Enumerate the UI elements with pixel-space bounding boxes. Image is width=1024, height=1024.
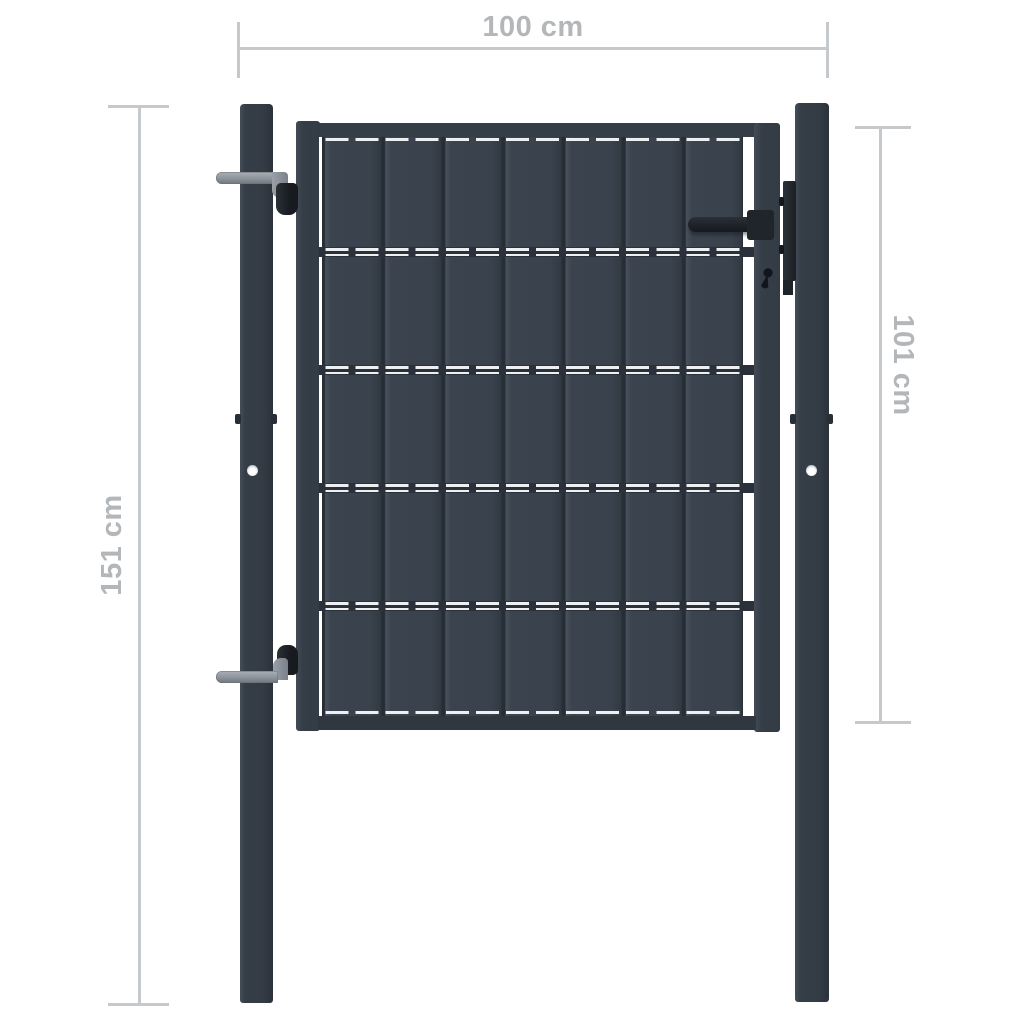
slats-pattern (322, 137, 743, 717)
left-post-hole (247, 465, 258, 476)
dimension-left-line (138, 106, 141, 1005)
upper-hinge-sleeve (276, 183, 298, 215)
dimension-left-tick-top (108, 105, 169, 108)
wire (322, 248, 743, 251)
lower-hinge-bolt (216, 671, 278, 683)
latch-plate (783, 181, 796, 281)
fence-gate-diagram: 100 cm 151 cm 101 cm (0, 0, 1024, 1024)
wire-row-divider-4 (319, 601, 754, 611)
dimension-right-tick-top (855, 126, 911, 129)
wire (322, 602, 743, 605)
left-post (240, 104, 273, 1003)
right-post-screw-right (827, 414, 833, 424)
left-post-screw-right (271, 414, 277, 424)
lock-body (747, 210, 774, 240)
wire (322, 372, 743, 375)
upper-hinge-bolt (216, 172, 278, 184)
wire-row-divider-3 (319, 483, 754, 493)
gate-left-stile (296, 121, 320, 731)
dimension-top-tick-left (237, 22, 240, 78)
wire (322, 484, 743, 487)
dimension-top-label: 100 cm (433, 10, 633, 44)
dimension-top-line (238, 47, 829, 50)
wire (322, 490, 743, 493)
wire (322, 366, 743, 369)
wire-row-divider-2 (319, 365, 754, 375)
latch-bolt-upper (779, 197, 784, 206)
dimension-left-tick-bottom (108, 1003, 169, 1006)
dimension-right-line (879, 127, 882, 724)
right-post-screw-left (790, 414, 796, 424)
mesh-top-edge (322, 138, 743, 141)
wire-row-divider-1 (319, 247, 754, 257)
dimension-right-label: 101 cm (886, 265, 920, 465)
dimension-right-tick-bottom (855, 721, 911, 724)
left-post-screw-left (235, 414, 241, 424)
dimension-left-label: 151 cm (95, 445, 129, 645)
right-post (795, 103, 829, 1002)
wire (322, 254, 743, 257)
gate-top-rail (318, 123, 756, 138)
dimension-top-tick-right (826, 22, 829, 78)
latch-plate-step (783, 280, 793, 295)
right-post-hole (806, 465, 817, 476)
keyhole-icon (757, 265, 775, 295)
gate-bottom-rail (318, 716, 756, 730)
mesh-bottom-edge (322, 711, 743, 714)
wire (322, 608, 743, 611)
latch-bolt-lower (779, 245, 784, 254)
